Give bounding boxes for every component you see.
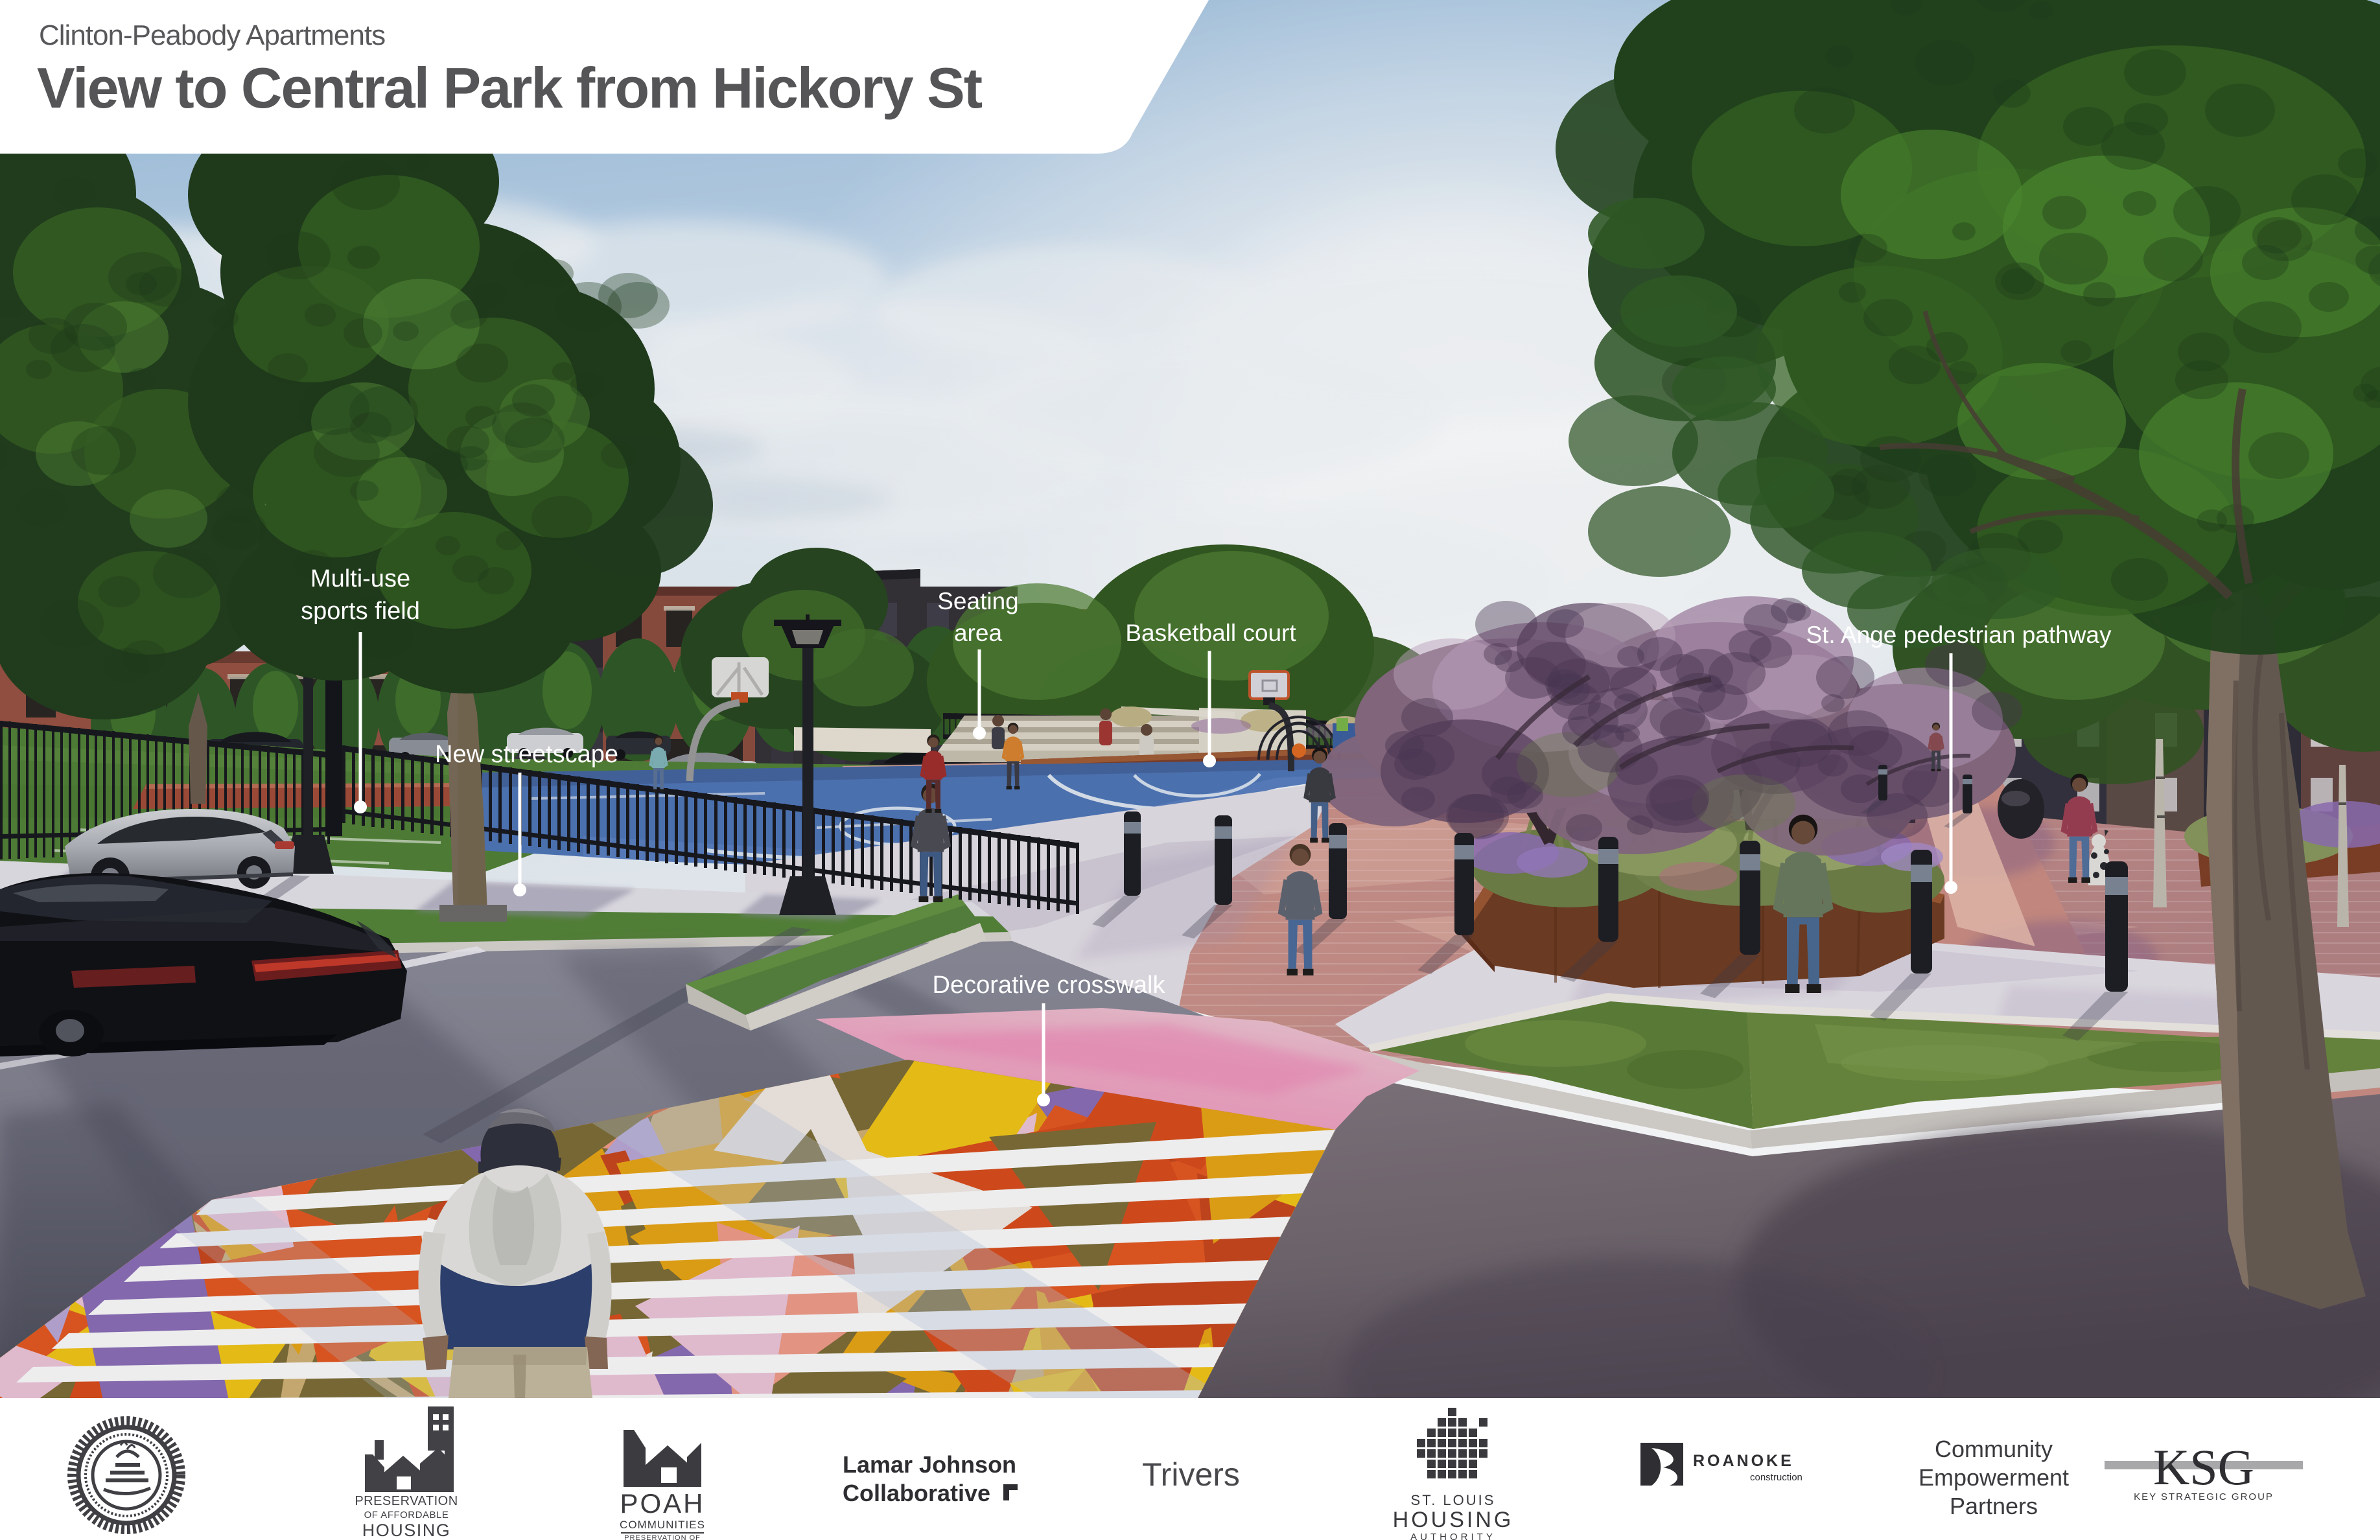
- svg-text:ROANOKE: ROANOKE: [1693, 1452, 1794, 1470]
- svg-text:AUTHORITY: AUTHORITY: [1410, 1532, 1496, 1540]
- svg-text:Community: Community: [1935, 1436, 2053, 1462]
- svg-text:COMMUNITIES: COMMUNITIES: [620, 1519, 705, 1531]
- svg-text:View to Central Park from Hick: View to Central Park from Hickory St: [37, 56, 983, 120]
- svg-text:ST. LOUIS: ST. LOUIS: [1411, 1492, 1496, 1508]
- svg-text:New streetscape: New streetscape: [435, 741, 618, 768]
- svg-text:Seating: Seating: [937, 588, 1019, 614]
- svg-text:KEY STRATEGIC GROUP: KEY STRATEGIC GROUP: [2134, 1491, 2274, 1502]
- svg-text:St. Ange pedestrian pathway: St. Ange pedestrian pathway: [1806, 622, 2112, 648]
- svg-text:PRESERVATION OF: PRESERVATION OF: [624, 1534, 701, 1540]
- svg-text:Collaborative: Collaborative: [843, 1480, 990, 1506]
- svg-text:Basketball court: Basketball court: [1125, 620, 1296, 646]
- svg-text:Trivers: Trivers: [1142, 1456, 1240, 1493]
- svg-text:HOUSING: HOUSING: [1393, 1508, 1514, 1532]
- svg-text:PRESERVATION: PRESERVATION: [355, 1494, 458, 1508]
- svg-text:sports field: sports field: [301, 598, 420, 625]
- svg-text:Empowerment: Empowerment: [1919, 1464, 2069, 1491]
- svg-text:construction: construction: [1750, 1472, 1802, 1483]
- svg-text:Clinton-Peabody Apartments: Clinton-Peabody Apartments: [39, 19, 385, 51]
- svg-text:HOUSING: HOUSING: [362, 1521, 451, 1540]
- svg-text:POAH: POAH: [620, 1488, 705, 1519]
- svg-text:Multi-use: Multi-use: [310, 565, 410, 592]
- svg-text:Partners: Partners: [1950, 1493, 2038, 1519]
- svg-text:OF AFFORDABLE: OF AFFORDABLE: [364, 1510, 449, 1521]
- svg-text:Decorative crosswalk: Decorative crosswalk: [933, 972, 1166, 999]
- svg-text:area: area: [954, 620, 1002, 646]
- svg-text:Lamar Johnson: Lamar Johnson: [843, 1451, 1016, 1478]
- svg-text:KSG: KSG: [2153, 1439, 2254, 1495]
